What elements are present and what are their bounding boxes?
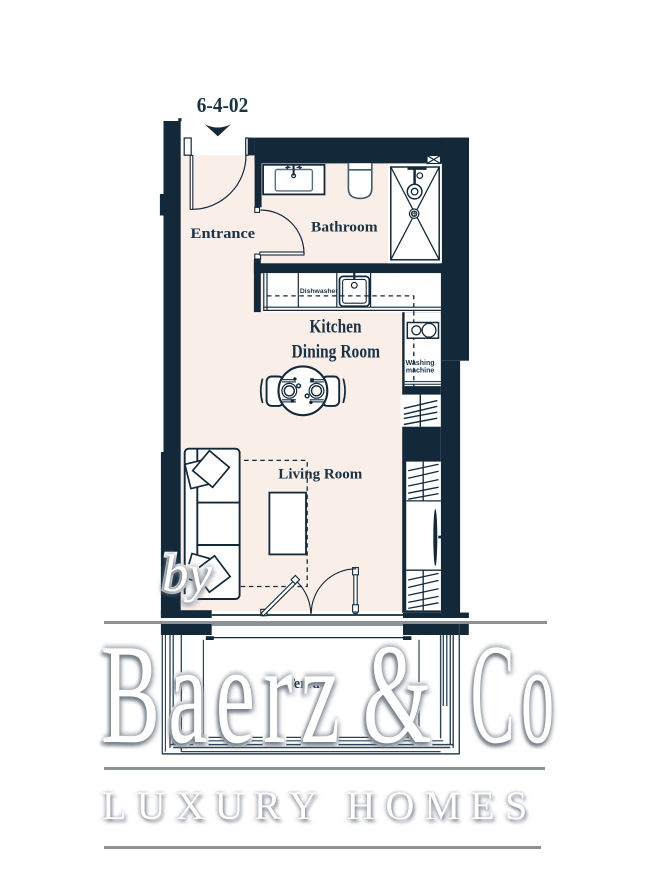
svg-text:6-4-02: 6-4-02 bbox=[197, 93, 249, 117]
svg-text:Living Room: Living Room bbox=[278, 467, 363, 483]
svg-text:Dishwasher: Dishwasher bbox=[300, 288, 339, 295]
svg-text:Washing: Washing bbox=[406, 360, 435, 367]
svg-text:Kitchen: Kitchen bbox=[310, 318, 363, 338]
svg-text:Dining Room: Dining Room bbox=[292, 343, 381, 363]
svg-text:machine: machine bbox=[406, 367, 435, 374]
svg-text:Bathroom: Bathroom bbox=[311, 220, 378, 236]
svg-text:Entrance: Entrance bbox=[191, 226, 256, 242]
